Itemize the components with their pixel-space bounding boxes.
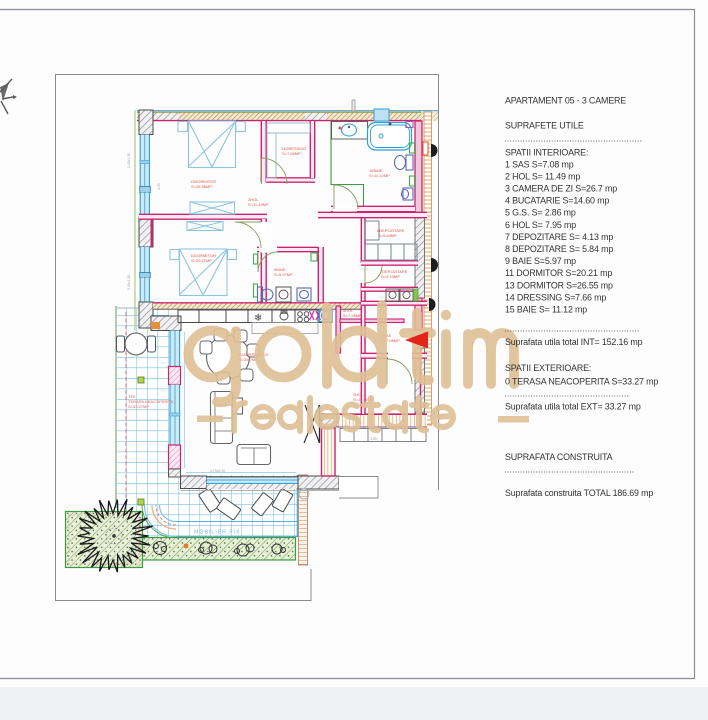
svg-text:APARTAMENT 05 - 3 CAMERE: APARTAMENT 05 - 3 CAMERE: [505, 96, 626, 106]
svg-text:S=11.12MP: S=11.12MP: [369, 173, 390, 178]
svg-text:0 TERASA NEACOPERITA S=33.27 m: 0 TERASA NEACOPERITA S=33.27 mp: [505, 377, 658, 387]
svg-text:7 DEPOZITARE S= 4.13 mp: 7 DEPOZITARE S= 4.13 mp: [505, 232, 613, 242]
svg-text:SUPRAFATA CONSTRUITA: SUPRAFATA CONSTRUITA: [505, 452, 613, 462]
svg-text:14 DRESSING S=7.66 mp: 14 DRESSING S=7.66 mp: [505, 292, 606, 302]
svg-text:2.40x1.20: 2.40x1.20: [127, 153, 131, 168]
svg-text:SPATII EXTERIOARE:: SPATII EXTERIOARE:: [505, 363, 591, 373]
svg-text:9 BAIE S=5.97 mp: 9 BAIE S=5.97 mp: [505, 256, 576, 266]
svg-text:S=5.84MP: S=5.84MP: [378, 233, 397, 238]
svg-text:S=7.95MP: S=7.95MP: [343, 313, 362, 318]
svg-text:SPATII INTERIOARE:: SPATII INTERIOARE:: [505, 148, 588, 158]
svg-text:3.05: 3.05: [370, 437, 377, 441]
svg-text:S=5.97MP: S=5.97MP: [274, 272, 293, 277]
svg-text:1 SAS S=7.08 mp: 1 SAS S=7.08 mp: [505, 159, 574, 169]
svg-text:3 CAMERA DE ZI S=26.7 mp: 3 CAMERA DE ZI S=26.7 mp: [505, 184, 617, 194]
svg-text:S=4.13MP: S=4.13MP: [381, 274, 400, 279]
svg-text:S=26.55MP: S=26.55MP: [191, 184, 212, 189]
svg-text:Suprafata construita TOTAL 186: Suprafata construita TOTAL 186.69 mp: [505, 488, 653, 498]
svg-text:2.40x1.20: 2.40x1.20: [127, 275, 131, 290]
svg-text:4.05: 4.05: [157, 183, 161, 190]
svg-text:4 BUCATARIE S=14.60 mp: 4 BUCATARIE S=14.60 mp: [505, 196, 609, 206]
svg-text:❄: ❄: [254, 313, 262, 324]
svg-text:15 BAIE S= 11.12 mp: 15 BAIE S= 11.12 mp: [505, 305, 587, 315]
svg-text:SUPRAFETE UTILE: SUPRAFETE UTILE: [505, 121, 584, 131]
svg-text:S=7.66MP: S=7.66MP: [282, 151, 301, 156]
svg-text:MOBILIER FIX: MOBILIER FIX: [194, 530, 240, 536]
svg-text:Suprafata utila total INT= 15: Suprafata utila total INT= 152.16 mp: [505, 337, 643, 347]
svg-text:5 G.S. S= 2.86 mp: 5 G.S. S= 2.86 mp: [505, 208, 576, 218]
svg-text:4.70x2.20: 4.70x2.20: [210, 469, 225, 473]
svg-text:6 HOL S= 7.95 mp: 6 HOL S= 7.95 mp: [505, 220, 576, 230]
svg-text:S=20.21MP: S=20.21MP: [191, 258, 212, 263]
svg-text:S=33.27MP: S=33.27MP: [128, 404, 149, 409]
svg-text:11 DORMITOR S=20.21 mp: 11 DORMITOR S=20.21 mp: [505, 268, 612, 278]
svg-text:S=11.49MP: S=11.49MP: [248, 202, 269, 207]
svg-text:Suprafata utila total EXT= 33.: Suprafata utila total EXT= 33.27 mp: [505, 402, 641, 412]
svg-text:13 DORMITOR S=26.55 mp: 13 DORMITOR S=26.55 mp: [505, 280, 613, 290]
svg-text:2 HOL S= 11.49 mp: 2 HOL S= 11.49 mp: [505, 171, 580, 181]
svg-text:8 DEPOZITARE S= 5.84 mp: 8 DEPOZITARE S= 5.84 mp: [505, 244, 613, 254]
